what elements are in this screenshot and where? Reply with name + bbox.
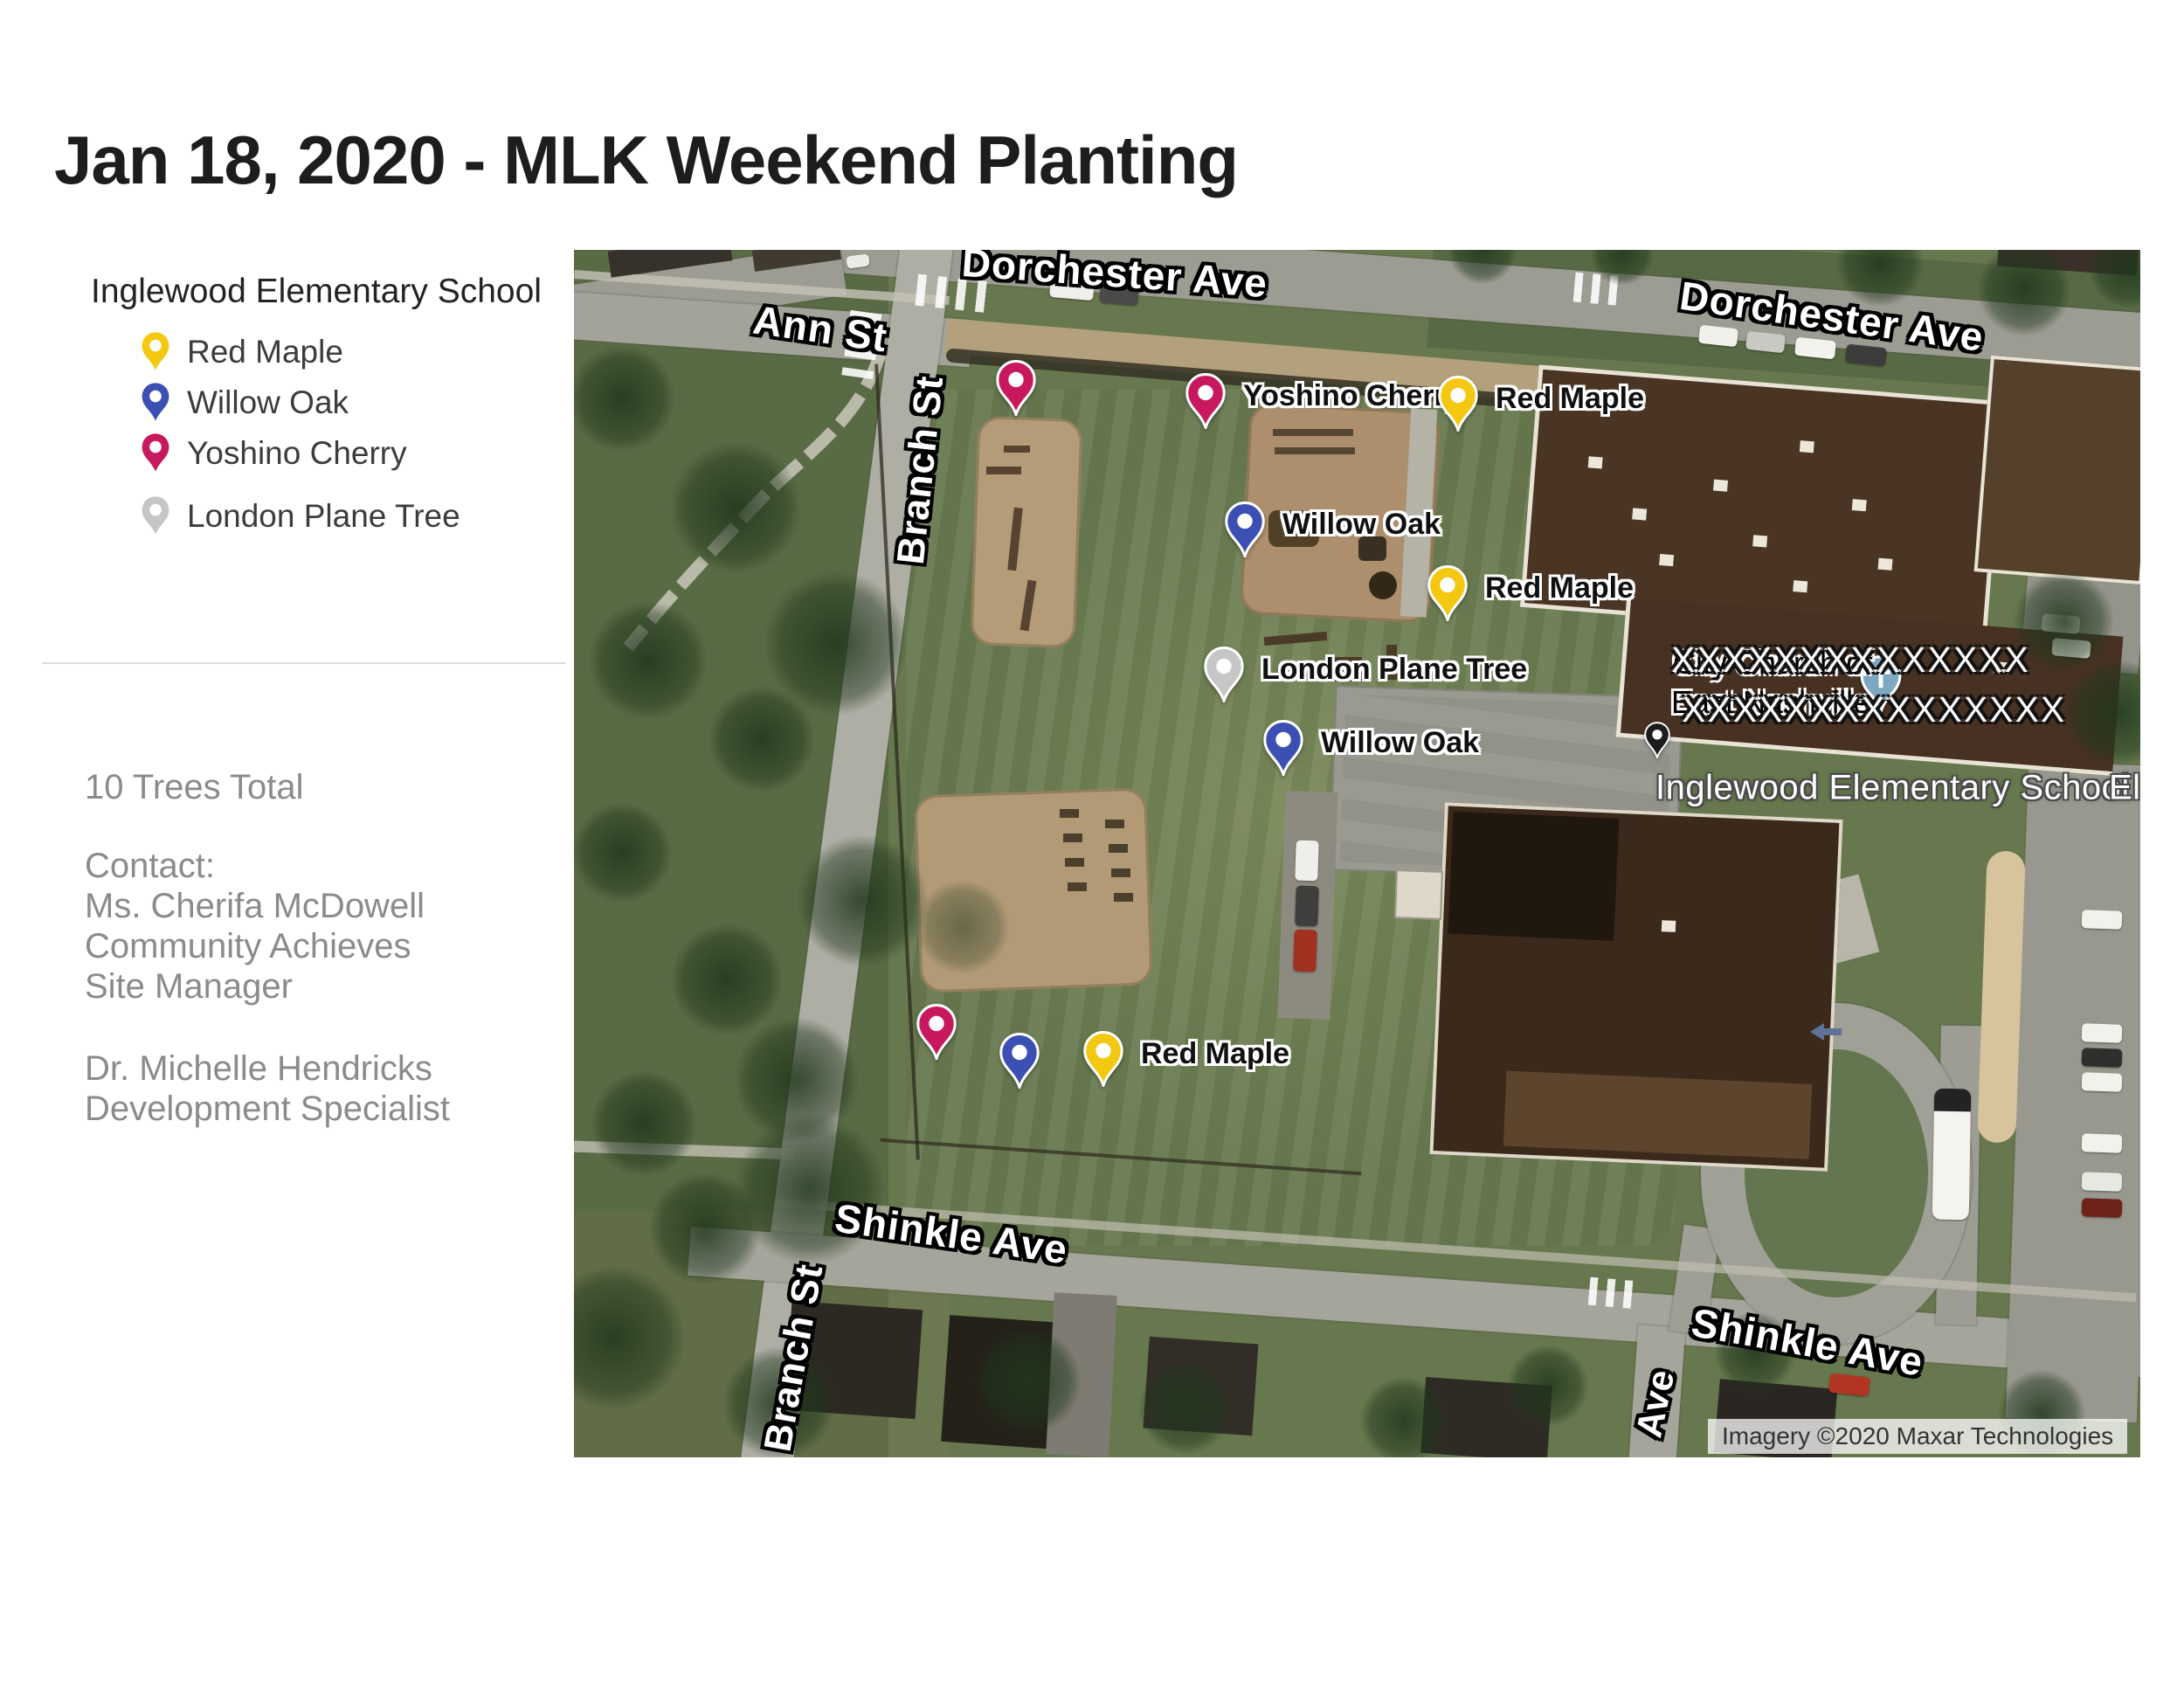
trees-total: 10 Trees Total — [85, 767, 304, 807]
tree-marker-yoshino-cherry[interactable] — [916, 1004, 957, 1060]
car-maroon — [2082, 1198, 2123, 1218]
tree-marker-london-plane[interactable]: London Plane Tree — [1204, 647, 1244, 702]
legend-item-label: Yoshino Cherry — [187, 435, 407, 472]
contact-org: Community Achieves — [85, 927, 411, 965]
tree-marker-yoshino-cherry[interactable]: Yoshino Cherry — [1185, 373, 1226, 429]
car — [1745, 331, 1786, 353]
imagery-attribution: Imagery ©2020 Maxar Technologies — [1708, 1419, 2127, 1454]
school-pin-icon — [1644, 722, 1670, 758]
road-arrow — [1810, 1023, 1842, 1045]
marker-label: Red Maple — [1496, 383, 1644, 414]
marker-label: Red Maple — [1141, 1038, 1289, 1069]
contact-block-2: Dr. Michelle Hendricks Development Speci… — [85, 1048, 450, 1129]
school-bus — [1932, 1089, 1972, 1221]
car — [1698, 325, 1738, 347]
car — [2082, 1133, 2123, 1153]
tree-marker-red-maple[interactable]: Red Maple — [1438, 376, 1478, 432]
yoshino-cherry-pin-icon — [916, 1004, 957, 1060]
marker-label: Willow Oak — [1282, 508, 1441, 540]
tree-marker-yoshino-cherry[interactable] — [996, 360, 1036, 416]
legend-item-london-plane[interactable]: London Plane Tree — [140, 491, 460, 542]
log-mark — [986, 467, 1021, 474]
car — [1295, 886, 1319, 927]
tree-canopy — [1343, 1359, 1465, 1457]
parking-lot — [2006, 762, 2140, 1423]
school-roof-east — [1974, 356, 2140, 585]
contact-name-2: Dr. Michelle Hendricks — [85, 1049, 432, 1088]
roof-vent — [1662, 920, 1676, 932]
garden-bed — [1060, 809, 1079, 818]
tree-marker-red-maple[interactable]: Red Maple — [1427, 565, 1468, 621]
sidebar-divider — [42, 662, 566, 664]
redaction-overlay: XXXXXXXXXXXXXXX — [1682, 689, 2066, 730]
small-white-building — [1394, 869, 1443, 920]
willow-oak-pin-icon — [1225, 502, 1265, 557]
car — [2082, 1172, 2123, 1192]
tree-marker-willow-oak[interactable]: Willow Oak — [1263, 720, 1303, 776]
legend-item-label: Willow Oak — [187, 384, 349, 421]
play-bars — [1273, 429, 1353, 436]
marker-label: London Plane Tree — [1261, 654, 1527, 685]
red-maple-pin-icon — [140, 330, 171, 374]
roof-dark-section — [1448, 812, 1619, 941]
tree-canopy — [736, 543, 936, 744]
garden-bed — [1068, 882, 1087, 891]
legend-item-label: London Plane Tree — [187, 498, 460, 535]
contact-role: Site Manager — [85, 967, 293, 1006]
marker-label: Red Maple — [1485, 572, 1634, 604]
london-plane-pin-icon — [140, 495, 171, 538]
roof-vent — [1713, 480, 1728, 492]
red-maple-pin-icon — [1438, 376, 1478, 432]
roof-vent — [1659, 554, 1674, 566]
legend-title: Inglewood Elementary School — [91, 273, 542, 311]
contact-heading: Contact: — [85, 847, 215, 885]
car — [2082, 1072, 2123, 1092]
marker-label: Yoshino Cherry — [1243, 380, 1462, 412]
roof-vent — [1800, 440, 1814, 453]
page: { "page": { "title": "Jan 18, 2020 - MLK… — [0, 0, 2184, 1688]
garden-bed — [1063, 834, 1082, 842]
willow-oak-pin-icon — [1263, 720, 1303, 776]
tree-canopy — [1491, 1329, 1605, 1442]
car-red — [1293, 930, 1317, 972]
roof-vent — [1752, 535, 1767, 547]
tree-marker-willow-oak[interactable] — [999, 1033, 1040, 1089]
car — [2082, 1023, 2123, 1043]
car — [1295, 841, 1319, 882]
car — [2082, 910, 2123, 930]
school-poi-pin[interactable] — [1644, 722, 1684, 778]
yoshino-cherry-pin-icon — [140, 432, 171, 475]
page-title: Jan 18, 2020 - MLK Weekend Planting — [54, 121, 1238, 200]
roof-light-band — [1503, 1071, 1812, 1159]
car — [2082, 1048, 2123, 1068]
roof-vent — [1878, 558, 1893, 571]
legend-item-red-maple[interactable]: Red Maple — [140, 327, 460, 377]
garden-bed — [1105, 820, 1124, 828]
garden-bed — [1065, 858, 1084, 867]
willow-oak-pin-icon — [999, 1033, 1040, 1089]
garden-bed — [1109, 844, 1128, 853]
crosswalk — [1588, 1277, 1640, 1310]
red-maple-pin-icon — [1083, 1031, 1123, 1087]
tree-marker-willow-oak[interactable]: Willow Oak — [1225, 502, 1265, 557]
play-bars — [1275, 447, 1355, 454]
garden-bed — [1111, 868, 1130, 877]
contact-name: Ms. Cherifa McDowell — [85, 887, 425, 925]
marker-label: Willow Oak — [1321, 727, 1479, 758]
willow-oak-pin-icon — [140, 381, 171, 425]
school-roof-south — [1429, 802, 1842, 1172]
redaction-overlay: XXXXXXXXXXXXXX — [1671, 640, 2030, 681]
roof-vent — [1588, 456, 1603, 468]
legend-item-yoshino-cherry[interactable]: Yoshino Cherry — [140, 428, 460, 479]
contact-block: Contact: Ms. Cherifa McDowell Community … — [85, 846, 425, 1007]
legend-item-willow-oak[interactable]: Willow Oak — [140, 377, 460, 428]
garden-bed — [1114, 893, 1133, 902]
place-label: Inglewood Elementary School — [1655, 769, 2130, 808]
yoshino-cherry-pin-icon — [1185, 373, 1226, 429]
london-plane-pin-icon — [1204, 647, 1244, 702]
bus-front — [1934, 1089, 1971, 1112]
roof-vent — [1632, 508, 1647, 520]
tree-canopy — [771, 809, 954, 993]
roof-vent — [1793, 580, 1807, 592]
car-red — [1828, 1373, 1870, 1397]
place-label: El — [2109, 769, 2140, 808]
log-mark — [1004, 446, 1030, 453]
satellite-map[interactable]: Yoshino CherryRed MapleWillow OakRed Map… — [574, 250, 2140, 1457]
legend-item-label: Red Maple — [187, 334, 343, 370]
tree-canopy — [954, 1307, 1102, 1456]
roof-vent — [1852, 499, 1867, 511]
legend: Red MapleWillow OakYoshino CherryLondon … — [140, 327, 460, 542]
yoshino-cherry-pin-icon — [996, 360, 1036, 416]
play-tire — [1369, 571, 1397, 599]
contact-role-2: Development Specialist — [85, 1090, 450, 1128]
tree-marker-red-maple[interactable]: Red Maple — [1083, 1031, 1123, 1087]
red-maple-pin-icon — [1427, 565, 1468, 621]
